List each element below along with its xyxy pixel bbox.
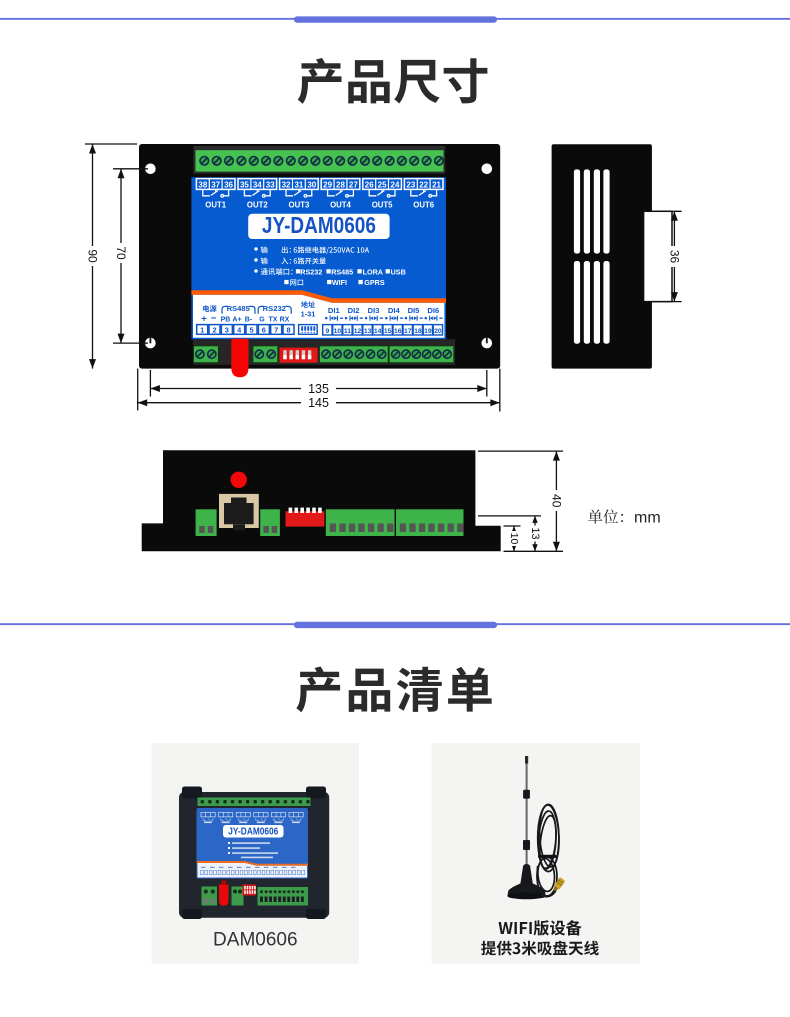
svg-text:30: 30 <box>307 180 316 189</box>
svg-text:40: 40 <box>549 494 563 508</box>
svg-text:10: 10 <box>334 328 342 335</box>
svg-text:12: 12 <box>354 328 362 335</box>
svg-text:36: 36 <box>224 180 233 189</box>
svg-text:A+: A+ <box>232 317 241 324</box>
svg-text:RS485: RS485 <box>227 304 251 313</box>
svg-text:OUT6: OUT6 <box>413 201 434 210</box>
svg-text:PB: PB <box>221 317 231 324</box>
svg-text:19: 19 <box>424 328 432 335</box>
svg-text:GPRS: GPRS <box>364 278 385 287</box>
svg-text:135: 135 <box>308 382 329 396</box>
svg-text:RS232: RS232 <box>300 267 322 276</box>
svg-text:24: 24 <box>391 180 400 189</box>
svg-text:70: 70 <box>114 246 128 260</box>
svg-text:17: 17 <box>404 328 412 335</box>
svg-text:DAM0606: DAM0606 <box>213 930 298 951</box>
svg-text:29: 29 <box>323 180 332 189</box>
svg-text:10: 10 <box>508 533 520 545</box>
svg-text:USB: USB <box>391 267 406 276</box>
svg-text:LORA: LORA <box>363 267 383 276</box>
svg-text:DI2: DI2 <box>348 306 360 315</box>
svg-text:9: 9 <box>326 328 330 335</box>
svg-text:25: 25 <box>378 180 387 189</box>
svg-text:1: 1 <box>200 325 204 334</box>
svg-text:11: 11 <box>344 328 351 335</box>
svg-text:1-31: 1-31 <box>301 310 316 319</box>
svg-text:15: 15 <box>384 328 392 335</box>
svg-text:RS485: RS485 <box>331 267 353 276</box>
svg-text:OUT5: OUT5 <box>372 201 393 210</box>
svg-text:26: 26 <box>365 180 374 189</box>
svg-text:31: 31 <box>294 180 303 189</box>
svg-text:OUT2: OUT2 <box>247 201 268 210</box>
svg-text:23: 23 <box>406 180 415 189</box>
svg-text:+: + <box>201 314 207 325</box>
svg-text:22: 22 <box>419 180 428 189</box>
svg-text:8: 8 <box>286 325 290 334</box>
svg-text:7: 7 <box>274 325 278 334</box>
svg-text:B-: B- <box>245 317 253 324</box>
svg-text:13: 13 <box>364 328 372 335</box>
svg-text:35: 35 <box>240 180 249 189</box>
svg-text:145: 145 <box>308 396 329 410</box>
svg-text:G: G <box>259 317 265 324</box>
svg-text:DI4: DI4 <box>388 306 401 315</box>
svg-text:18: 18 <box>414 328 422 335</box>
svg-text:21: 21 <box>432 180 441 189</box>
svg-text:DI3: DI3 <box>368 306 380 315</box>
svg-text:90: 90 <box>86 249 100 263</box>
svg-text:DI5: DI5 <box>408 306 421 315</box>
svg-text:JY-DAM0606: JY-DAM0606 <box>228 826 278 837</box>
svg-text:36: 36 <box>667 250 681 264</box>
svg-text:32: 32 <box>282 180 291 189</box>
svg-text:DI6: DI6 <box>427 306 439 315</box>
svg-text:5: 5 <box>249 325 253 334</box>
svg-text:16: 16 <box>394 328 402 335</box>
svg-text:37: 37 <box>211 180 220 189</box>
svg-text:DI1: DI1 <box>328 306 341 315</box>
svg-text:RS232: RS232 <box>263 304 286 313</box>
svg-text:14: 14 <box>374 328 382 335</box>
svg-text:28: 28 <box>336 180 345 189</box>
svg-text:OUT4: OUT4 <box>330 201 351 210</box>
svg-text:OUT3: OUT3 <box>289 201 310 210</box>
svg-text:WIFI: WIFI <box>332 278 347 287</box>
svg-text:JY-DAM0606: JY-DAM0606 <box>262 212 376 238</box>
svg-text:13: 13 <box>529 527 541 539</box>
svg-text:mm: mm <box>634 510 661 527</box>
svg-text:38: 38 <box>198 180 207 189</box>
svg-text:27: 27 <box>349 180 358 189</box>
svg-text:OUT1: OUT1 <box>205 201 226 210</box>
svg-text:33: 33 <box>266 180 275 189</box>
svg-text:34: 34 <box>253 180 262 189</box>
svg-text:20: 20 <box>434 328 442 335</box>
svg-text:2: 2 <box>212 325 216 334</box>
svg-text:TX: TX <box>269 317 278 324</box>
svg-text:−: − <box>211 313 217 324</box>
svg-text:3: 3 <box>225 325 229 334</box>
svg-text:6: 6 <box>262 325 266 334</box>
svg-text:RX: RX <box>280 317 290 324</box>
